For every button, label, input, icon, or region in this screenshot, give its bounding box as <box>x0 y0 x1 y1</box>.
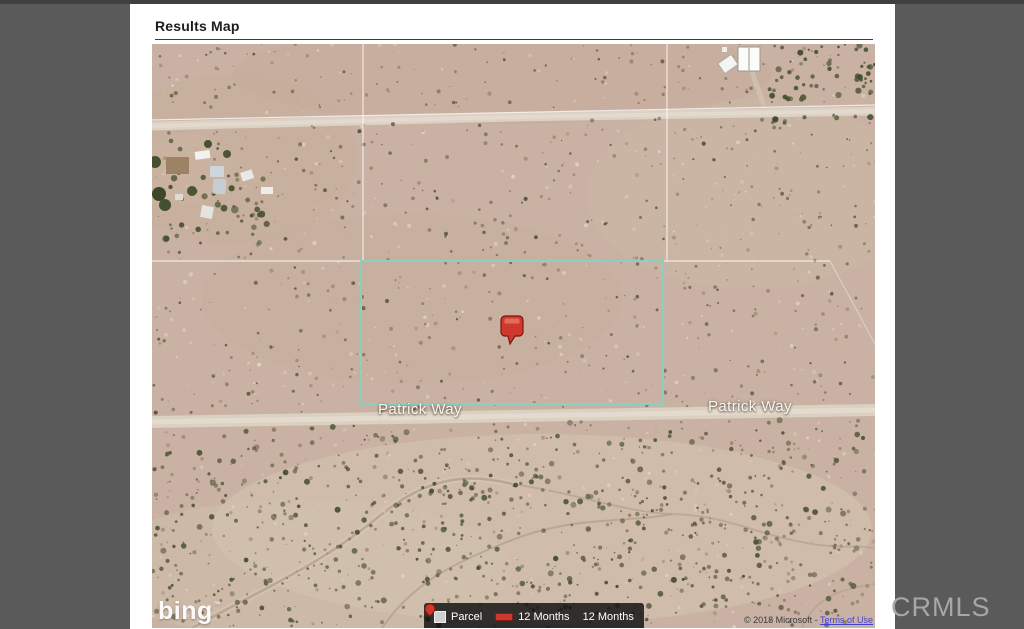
map-legend: Parcel 12 Months 12 Months <box>424 603 644 628</box>
trademark-symbol: ™ <box>213 600 222 609</box>
page-title: Results Map <box>155 18 875 34</box>
window-top-edge <box>0 0 1024 4</box>
street-label: Patrick Way <box>378 401 462 418</box>
results-page: Results Map <box>130 4 895 629</box>
crmls-watermark: CRMLS <box>891 592 991 623</box>
copyright-text: © 2018 Microsoft - <box>744 615 818 625</box>
aerial-map-image <box>152 44 875 628</box>
sold-pin-icon <box>424 603 436 617</box>
legend-item-sold-line: 12 Months <box>495 611 569 623</box>
legend-label: Parcel <box>451 611 482 623</box>
title-divider <box>155 39 873 40</box>
map-canvas[interactable]: Patrick Way Patrick Way bing™ © 2018 Mic… <box>152 44 875 628</box>
street-label: Patrick Way <box>708 398 792 415</box>
map-copyright: © 2018 Microsoft - Terms of Use <box>744 615 873 625</box>
bing-logo-text: bing <box>158 597 213 625</box>
legend-item-parcel: Parcel <box>434 611 482 623</box>
sold-line-icon <box>495 613 513 621</box>
legend-label: 12 Months <box>518 611 569 623</box>
bing-logo: bing™ <box>158 597 221 626</box>
copyright-link[interactable]: Terms of Use <box>820 615 873 625</box>
legend-label: 12 Months <box>583 611 634 623</box>
legend-item-sold-pin: 12 Months <box>583 611 634 623</box>
